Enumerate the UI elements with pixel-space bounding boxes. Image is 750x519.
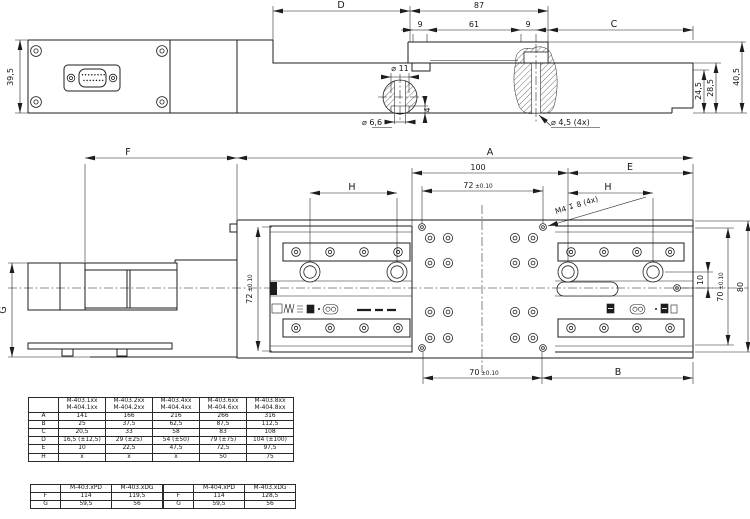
table-cell: 79 (±75) <box>200 437 247 445</box>
table-cell: 16,5 (±12,5) <box>59 437 106 445</box>
variant-table-m403: M-403.xPDM-403.xDGF114119,5G59,556 <box>30 484 163 509</box>
corner-cell <box>29 398 59 413</box>
table-cell: 97,5 <box>247 445 294 453</box>
table-cell: 114 <box>61 493 112 501</box>
row-label: C <box>29 429 59 437</box>
dim-70-bottom: 70±0.10 <box>469 368 499 377</box>
table-cell: 72,5 <box>200 445 247 453</box>
dim-F: F <box>125 147 130 158</box>
datasheet-drawing-page: D 87 9 61 9 C ⌀ 11 ⌀ 6,6 4 ⌀ 4,5 (4x) 39… <box>0 0 750 519</box>
dim-depth4: 4 <box>423 107 432 112</box>
dim-10: 10 <box>696 275 705 285</box>
column-header: M-403.4xx M-404.4xx <box>153 398 200 413</box>
row-label: D <box>29 437 59 445</box>
table-cell: 37,5 <box>106 421 153 429</box>
dim-C: C <box>611 19 618 30</box>
slot-right <box>557 282 618 296</box>
table-cell: 83 <box>200 429 247 437</box>
column-header: M-403.xPD <box>61 485 112 493</box>
dim-D: D <box>337 0 344 11</box>
table-cell: 266 <box>200 413 247 421</box>
table-cell: x <box>153 453 200 461</box>
column-header: M-403.1xx M-404.1xx <box>59 398 106 413</box>
table-cell: 87,5 <box>200 421 247 429</box>
dim-87: 87 <box>474 1 484 10</box>
dim-24-5: 24,5 <box>694 82 703 100</box>
table-cell: 59,5 <box>194 501 245 509</box>
row-label: A <box>29 413 59 421</box>
plan-view <box>8 46 750 384</box>
dim-72-top: 72±0.10 <box>463 181 493 190</box>
side-extension-lines <box>15 6 747 124</box>
column-header: M-404.xPD <box>194 485 245 493</box>
column-header: M-403.8xx M-404.8xx <box>247 398 294 413</box>
counterbore-section <box>378 74 424 121</box>
variant-table-m404: M-404.xPDM-403.xDGF114128,5G59,556 <box>163 484 296 509</box>
table-cell: 316 <box>247 413 294 421</box>
row-label: F <box>164 493 194 501</box>
table-cell: 128,5 <box>245 493 296 501</box>
table-cell: 20,5 <box>59 429 106 437</box>
label-marks-left <box>272 304 396 314</box>
motor-assembly <box>28 260 237 357</box>
table-cell: x <box>106 453 153 461</box>
dim-40-5: 40,5 <box>732 68 741 86</box>
side-view-outline <box>28 40 693 113</box>
dim-H-right: H <box>604 182 611 193</box>
row-label: G <box>164 501 194 509</box>
row-label: G <box>31 501 61 509</box>
table-cell: 22,5 <box>106 445 153 453</box>
platform-left <box>270 226 412 352</box>
column-header: M-403.6xx M-404.6xx <box>200 398 247 413</box>
dim-dia11: ⌀ 11 <box>391 64 409 73</box>
dim-H-left: H <box>348 182 355 193</box>
row-label: H <box>29 453 59 461</box>
label-marks-right <box>607 304 677 314</box>
dim-dia66: ⌀ 6,6 <box>362 118 382 127</box>
table-cell: 112,5 <box>247 421 294 429</box>
dim-28-5: 28,5 <box>706 79 715 97</box>
table-cell: 119,5 <box>112 493 163 501</box>
model-dimension-table: M-403.1xx M-404.1xxM-403.2xx M-404.2xxM-… <box>28 397 294 462</box>
dim-G: G <box>0 306 9 313</box>
screw-hole-section <box>513 44 560 122</box>
dim-dia45: ⌀ 4,5 (4x) <box>551 118 590 127</box>
table-cell: 104 (±100) <box>247 437 294 445</box>
dim-B: B <box>615 367 622 378</box>
dim-39-5: 39,5 <box>6 68 15 86</box>
table-cell: 166 <box>106 413 153 421</box>
column-header: M-403.xDG <box>245 485 296 493</box>
table-cell: 54 (±50) <box>153 437 200 445</box>
table-cell: 58 <box>153 429 200 437</box>
dim-72-left: 72±0.10 <box>245 274 254 304</box>
table-cell: 59,5 <box>61 501 112 509</box>
dim-A: A <box>487 147 494 158</box>
table-cell: 29 (±25) <box>106 437 153 445</box>
table-cell: 114 <box>194 493 245 501</box>
corner-cell <box>31 485 61 493</box>
table-cell: 47,5 <box>153 445 200 453</box>
table-cell: 108 <box>247 429 294 437</box>
dim-100: 100 <box>470 163 485 172</box>
corner-cell <box>164 485 194 493</box>
table-cell: 25 <box>59 421 106 429</box>
row-label: E <box>29 445 59 453</box>
dim-70-right: 70±0.10 <box>716 272 725 302</box>
column-header: M-403.xDG <box>112 485 163 493</box>
tab-left <box>270 282 277 295</box>
column-header: M-403.2xx M-404.2xx <box>106 398 153 413</box>
table-cell: 75 <box>247 453 294 461</box>
plan-extension-lines <box>8 164 750 384</box>
table-cell: 56 <box>112 501 163 509</box>
table-cell: 62,5 <box>153 421 200 429</box>
table-cell: 141 <box>59 413 106 421</box>
row-label: F <box>31 493 61 501</box>
dim-9-right: 9 <box>525 20 530 29</box>
table-cell: 33 <box>106 429 153 437</box>
table-cell: 10 <box>59 445 106 453</box>
row-label: B <box>29 421 59 429</box>
table-cell: 216 <box>153 413 200 421</box>
dim-E: E <box>627 162 633 173</box>
side-view <box>15 6 747 128</box>
table-cell: x <box>59 453 106 461</box>
dim-80: 80 <box>736 282 745 292</box>
dim-9-left: 9 <box>417 20 422 29</box>
table-cell: 56 <box>245 501 296 509</box>
table-cell: 50 <box>200 453 247 461</box>
dim-61: 61 <box>469 20 479 29</box>
